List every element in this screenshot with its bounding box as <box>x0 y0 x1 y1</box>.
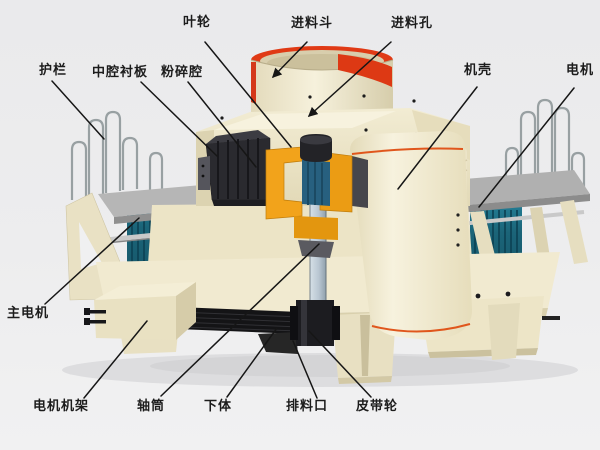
leader-cavity-liner <box>141 82 217 156</box>
left-guardrail <box>72 112 162 200</box>
label-belt-pulley: 皮带轮 <box>356 400 398 414</box>
floor-shadow-inner <box>150 355 510 377</box>
label-main-motor: 主电机 <box>7 307 49 321</box>
label-motor: 电机 <box>566 64 594 78</box>
label-guardrail: 护栏 <box>39 64 67 78</box>
label-feed-hole: 进料孔 <box>391 17 433 31</box>
label-lower-body: 下体 <box>204 400 232 414</box>
label-motor-frame: 电机机架 <box>33 400 89 414</box>
label-impeller: 叶轮 <box>183 16 211 30</box>
leader-guardrail <box>52 81 104 139</box>
label-casing: 机壳 <box>464 64 492 78</box>
machine-illustration <box>0 0 600 450</box>
label-crushing-chamber: 粉碎腔 <box>161 66 203 80</box>
label-feed-hopper: 进料斗 <box>291 17 333 31</box>
label-middle-cavity-liner: 中腔衬板 <box>92 66 148 80</box>
diagram-canvas: 叶轮 进料斗 进料孔 护栏 中腔衬板 粉碎腔 机壳 电机 主电机 电机机架 轴筒… <box>0 0 600 450</box>
label-discharge-port: 排料口 <box>286 400 328 414</box>
label-shaft-cylinder: 轴筒 <box>137 400 165 414</box>
